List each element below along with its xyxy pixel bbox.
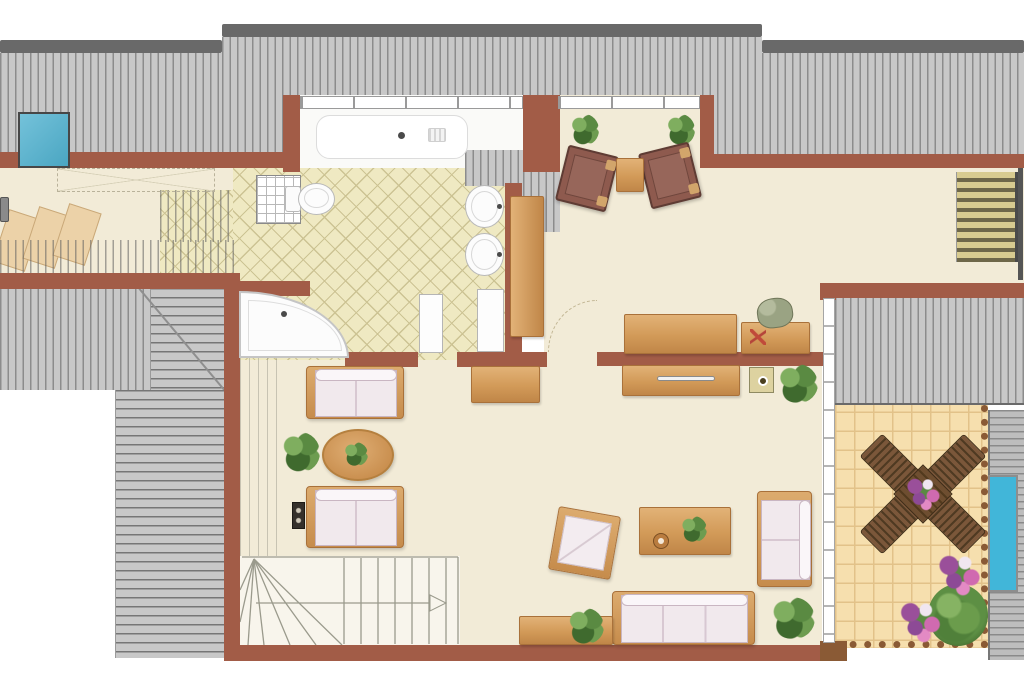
sofa-backrest — [315, 369, 397, 381]
knee-wall-strip — [240, 358, 278, 556]
bathroom-cabinet — [477, 289, 504, 352]
roof-cap-right — [762, 40, 1024, 53]
dining-table-plant — [681, 516, 707, 542]
bowl-inner — [658, 538, 664, 544]
wardrobe — [510, 196, 544, 337]
washbasin-faucet — [497, 204, 502, 209]
corridor-end-window — [1018, 168, 1023, 280]
floor-plan — [0, 0, 1024, 683]
sitting-room-window — [558, 96, 700, 109]
wall-bath-south-west — [345, 352, 418, 367]
wall-corridor-north — [713, 154, 1024, 168]
sitting-side-table — [616, 158, 644, 192]
wall-hallway-south — [0, 273, 240, 289]
washbasin-1 — [465, 185, 504, 228]
sofa-east — [757, 491, 812, 587]
washbasin-faucet — [497, 252, 502, 257]
sofa-backrest — [799, 500, 811, 580]
hall-plant — [778, 364, 818, 403]
living-plant-west — [282, 432, 320, 472]
toilet-bowl-inner — [304, 188, 329, 208]
stool-center — [758, 376, 768, 386]
wall-bottom — [224, 645, 847, 661]
washbasin-inner — [471, 191, 498, 222]
sofa-backrest — [315, 489, 397, 501]
washbasin-inner — [471, 239, 498, 270]
roof-overlay-tiles — [160, 190, 233, 242]
toilet-bowl — [298, 183, 335, 215]
wall-terrace-sw-post — [820, 641, 847, 661]
sofa-wall — [612, 591, 755, 645]
wall-sitting-right — [700, 95, 714, 168]
roof-cap-middle — [222, 24, 762, 37]
armchair-pad-1 — [679, 147, 691, 159]
staircase-main — [240, 556, 460, 645]
dining-table-bowl — [653, 533, 669, 549]
terrace-planter — [988, 475, 1018, 592]
hall-sideboard — [624, 314, 737, 354]
hallway-door-pull — [0, 197, 9, 222]
washbasin-2 — [465, 233, 504, 276]
sitting-plant-right — [667, 114, 695, 145]
stereo-speaker — [292, 502, 305, 529]
corner-bathtub-drain — [281, 311, 287, 317]
toilet — [285, 183, 335, 215]
low-headroom-zone — [57, 168, 215, 192]
bathroom-door-leaf — [419, 294, 443, 353]
skylight — [18, 112, 70, 168]
bathtub-drain — [398, 132, 405, 139]
wall-corridor-south — [825, 283, 1024, 298]
wall-bath-south-east — [457, 352, 547, 367]
terrace-glass-wall — [823, 298, 835, 643]
sideboard-plant — [568, 608, 604, 644]
sofa-south — [306, 486, 404, 548]
wall-left-main — [224, 283, 240, 660]
bathtub — [302, 108, 500, 170]
roof-slope-bottom-left — [115, 390, 225, 658]
living-plant-east — [771, 597, 815, 639]
lowboard-handle — [657, 376, 715, 381]
armchair-cushion — [557, 515, 612, 570]
roof-cap-left — [0, 40, 222, 53]
stairs-down — [956, 172, 1018, 262]
roof-slope-left-hip — [150, 288, 225, 390]
desk-marks — [750, 329, 766, 345]
reading-armchair — [548, 506, 621, 580]
bathtub-headrest — [428, 128, 446, 142]
armchair-pad-2 — [688, 183, 700, 195]
armchair-pad-2 — [596, 195, 608, 207]
wall-bath-dormer-left — [283, 95, 300, 172]
roof-slope-top-right — [762, 53, 1024, 154]
sofa-backrest — [621, 594, 748, 606]
roof-slope-right-mid — [835, 298, 1024, 405]
terrace-dining-set — [861, 444, 985, 544]
coffee-table-plant — [344, 442, 368, 466]
hall-cabinet — [471, 366, 540, 403]
armchair-cushion — [648, 151, 693, 199]
sofa-north — [306, 366, 404, 419]
wall-stool — [749, 367, 774, 393]
roof-overlay-hallway — [0, 240, 237, 273]
sitting-plant-left — [571, 114, 599, 145]
wall-bath-sitting-divider — [523, 95, 560, 172]
